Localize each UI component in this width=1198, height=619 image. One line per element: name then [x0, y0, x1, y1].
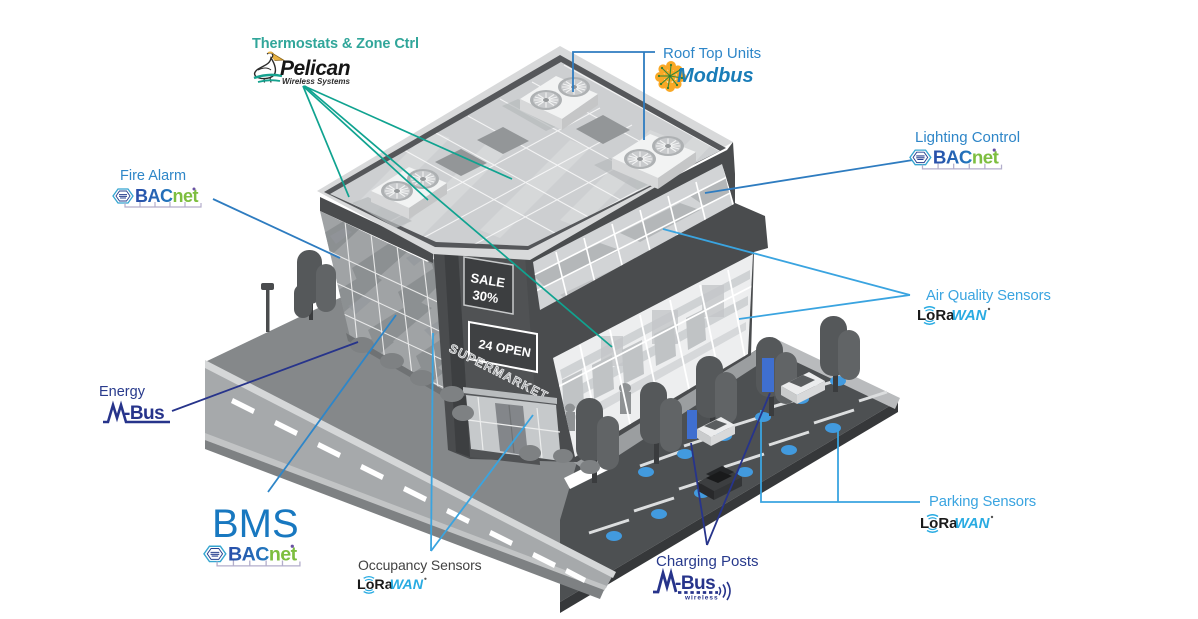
svg-text:Thermostats & Zone Ctrl: Thermostats & Zone Ctrl	[252, 36, 419, 52]
svg-text:Occupancy Sensors: Occupancy Sensors	[358, 557, 482, 573]
svg-text:Modbus: Modbus	[677, 65, 754, 87]
svg-text:wireless: wireless	[684, 595, 719, 602]
svg-text:Wireless Systems: Wireless Systems	[282, 77, 351, 86]
svg-text:BMS: BMS	[212, 502, 299, 546]
svg-text:Charging Posts: Charging Posts	[656, 553, 759, 570]
svg-text:Air Quality Sensors: Air Quality Sensors	[926, 288, 1051, 304]
svg-text:Roof Top Units: Roof Top Units	[663, 45, 761, 62]
svg-text:Lighting Control: Lighting Control	[915, 129, 1020, 146]
svg-text:Energy: Energy	[99, 384, 146, 400]
svg-text:-Bus: -Bus	[675, 573, 715, 594]
svg-text:Parking Sensors: Parking Sensors	[929, 494, 1036, 510]
svg-text:Fire Alarm: Fire Alarm	[120, 168, 186, 184]
